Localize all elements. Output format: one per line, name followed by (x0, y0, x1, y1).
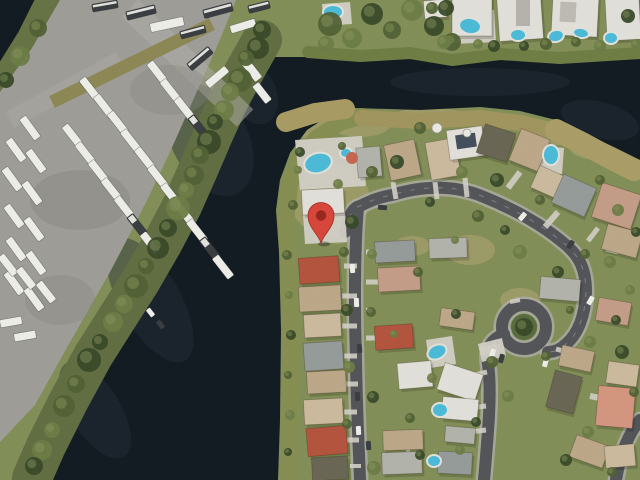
map-pin-inner-dot (316, 210, 326, 220)
satellite-map[interactable] (0, 0, 640, 480)
satellite-map-canvas[interactable] (0, 0, 640, 480)
map-pin-shadow (318, 242, 330, 247)
